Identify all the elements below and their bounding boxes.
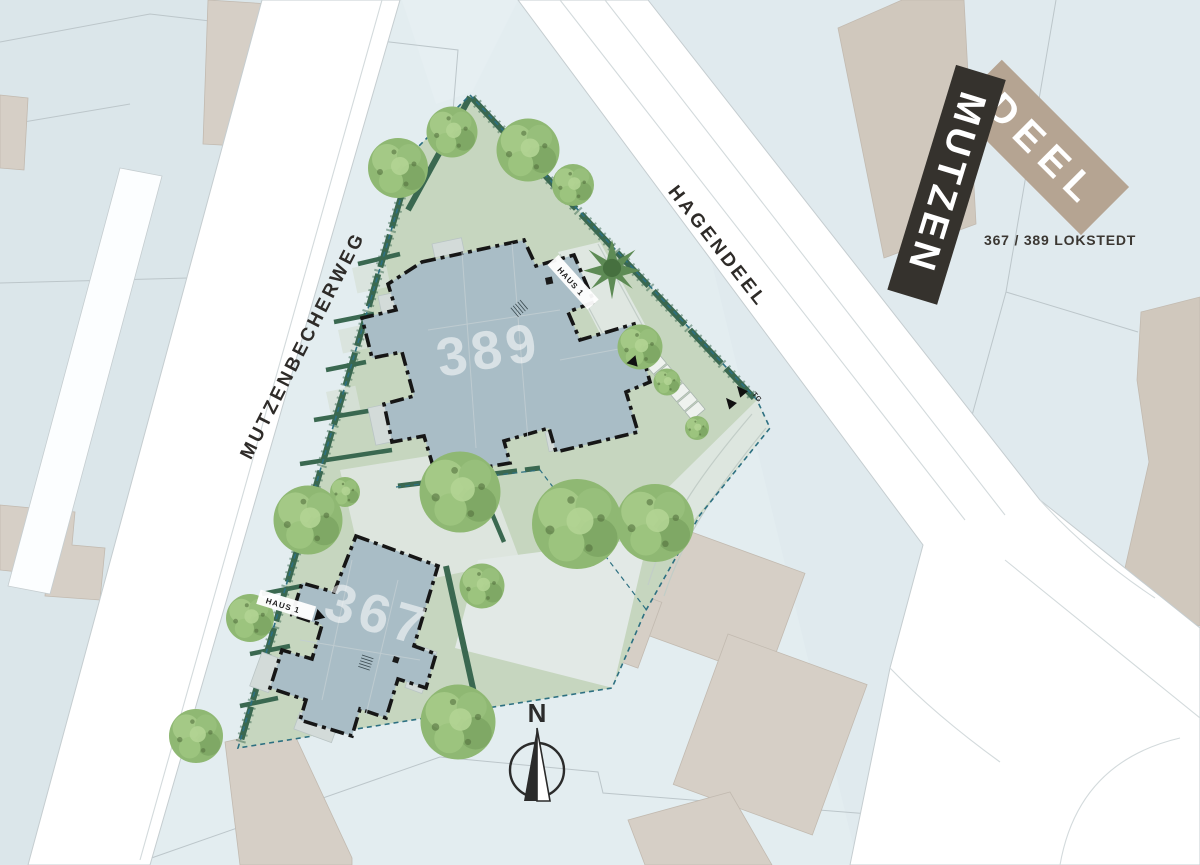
site-plan-canvas: 389 367 <box>0 0 1200 865</box>
tree-icon <box>497 119 560 182</box>
tree-icon <box>420 452 501 533</box>
bush-icon <box>654 369 681 396</box>
tree-icon <box>532 479 622 569</box>
tree-icon <box>552 164 594 206</box>
stair-core-389 <box>545 277 553 285</box>
tree-icon <box>427 107 478 158</box>
tree-icon <box>169 709 223 763</box>
tree-icon <box>421 685 496 760</box>
bush-icon <box>685 416 709 440</box>
neighbor-building <box>0 95 28 170</box>
compass-north-label: N <box>528 698 547 728</box>
logo-address: 367 / 389 LOKSTEDT <box>984 232 1136 248</box>
site-plan: 389 367 <box>0 0 1200 865</box>
tree-icon <box>368 138 428 198</box>
tree-icon <box>460 564 505 609</box>
tree-icon <box>616 484 694 562</box>
tree-icon <box>274 486 343 555</box>
tree-icon <box>618 325 663 370</box>
